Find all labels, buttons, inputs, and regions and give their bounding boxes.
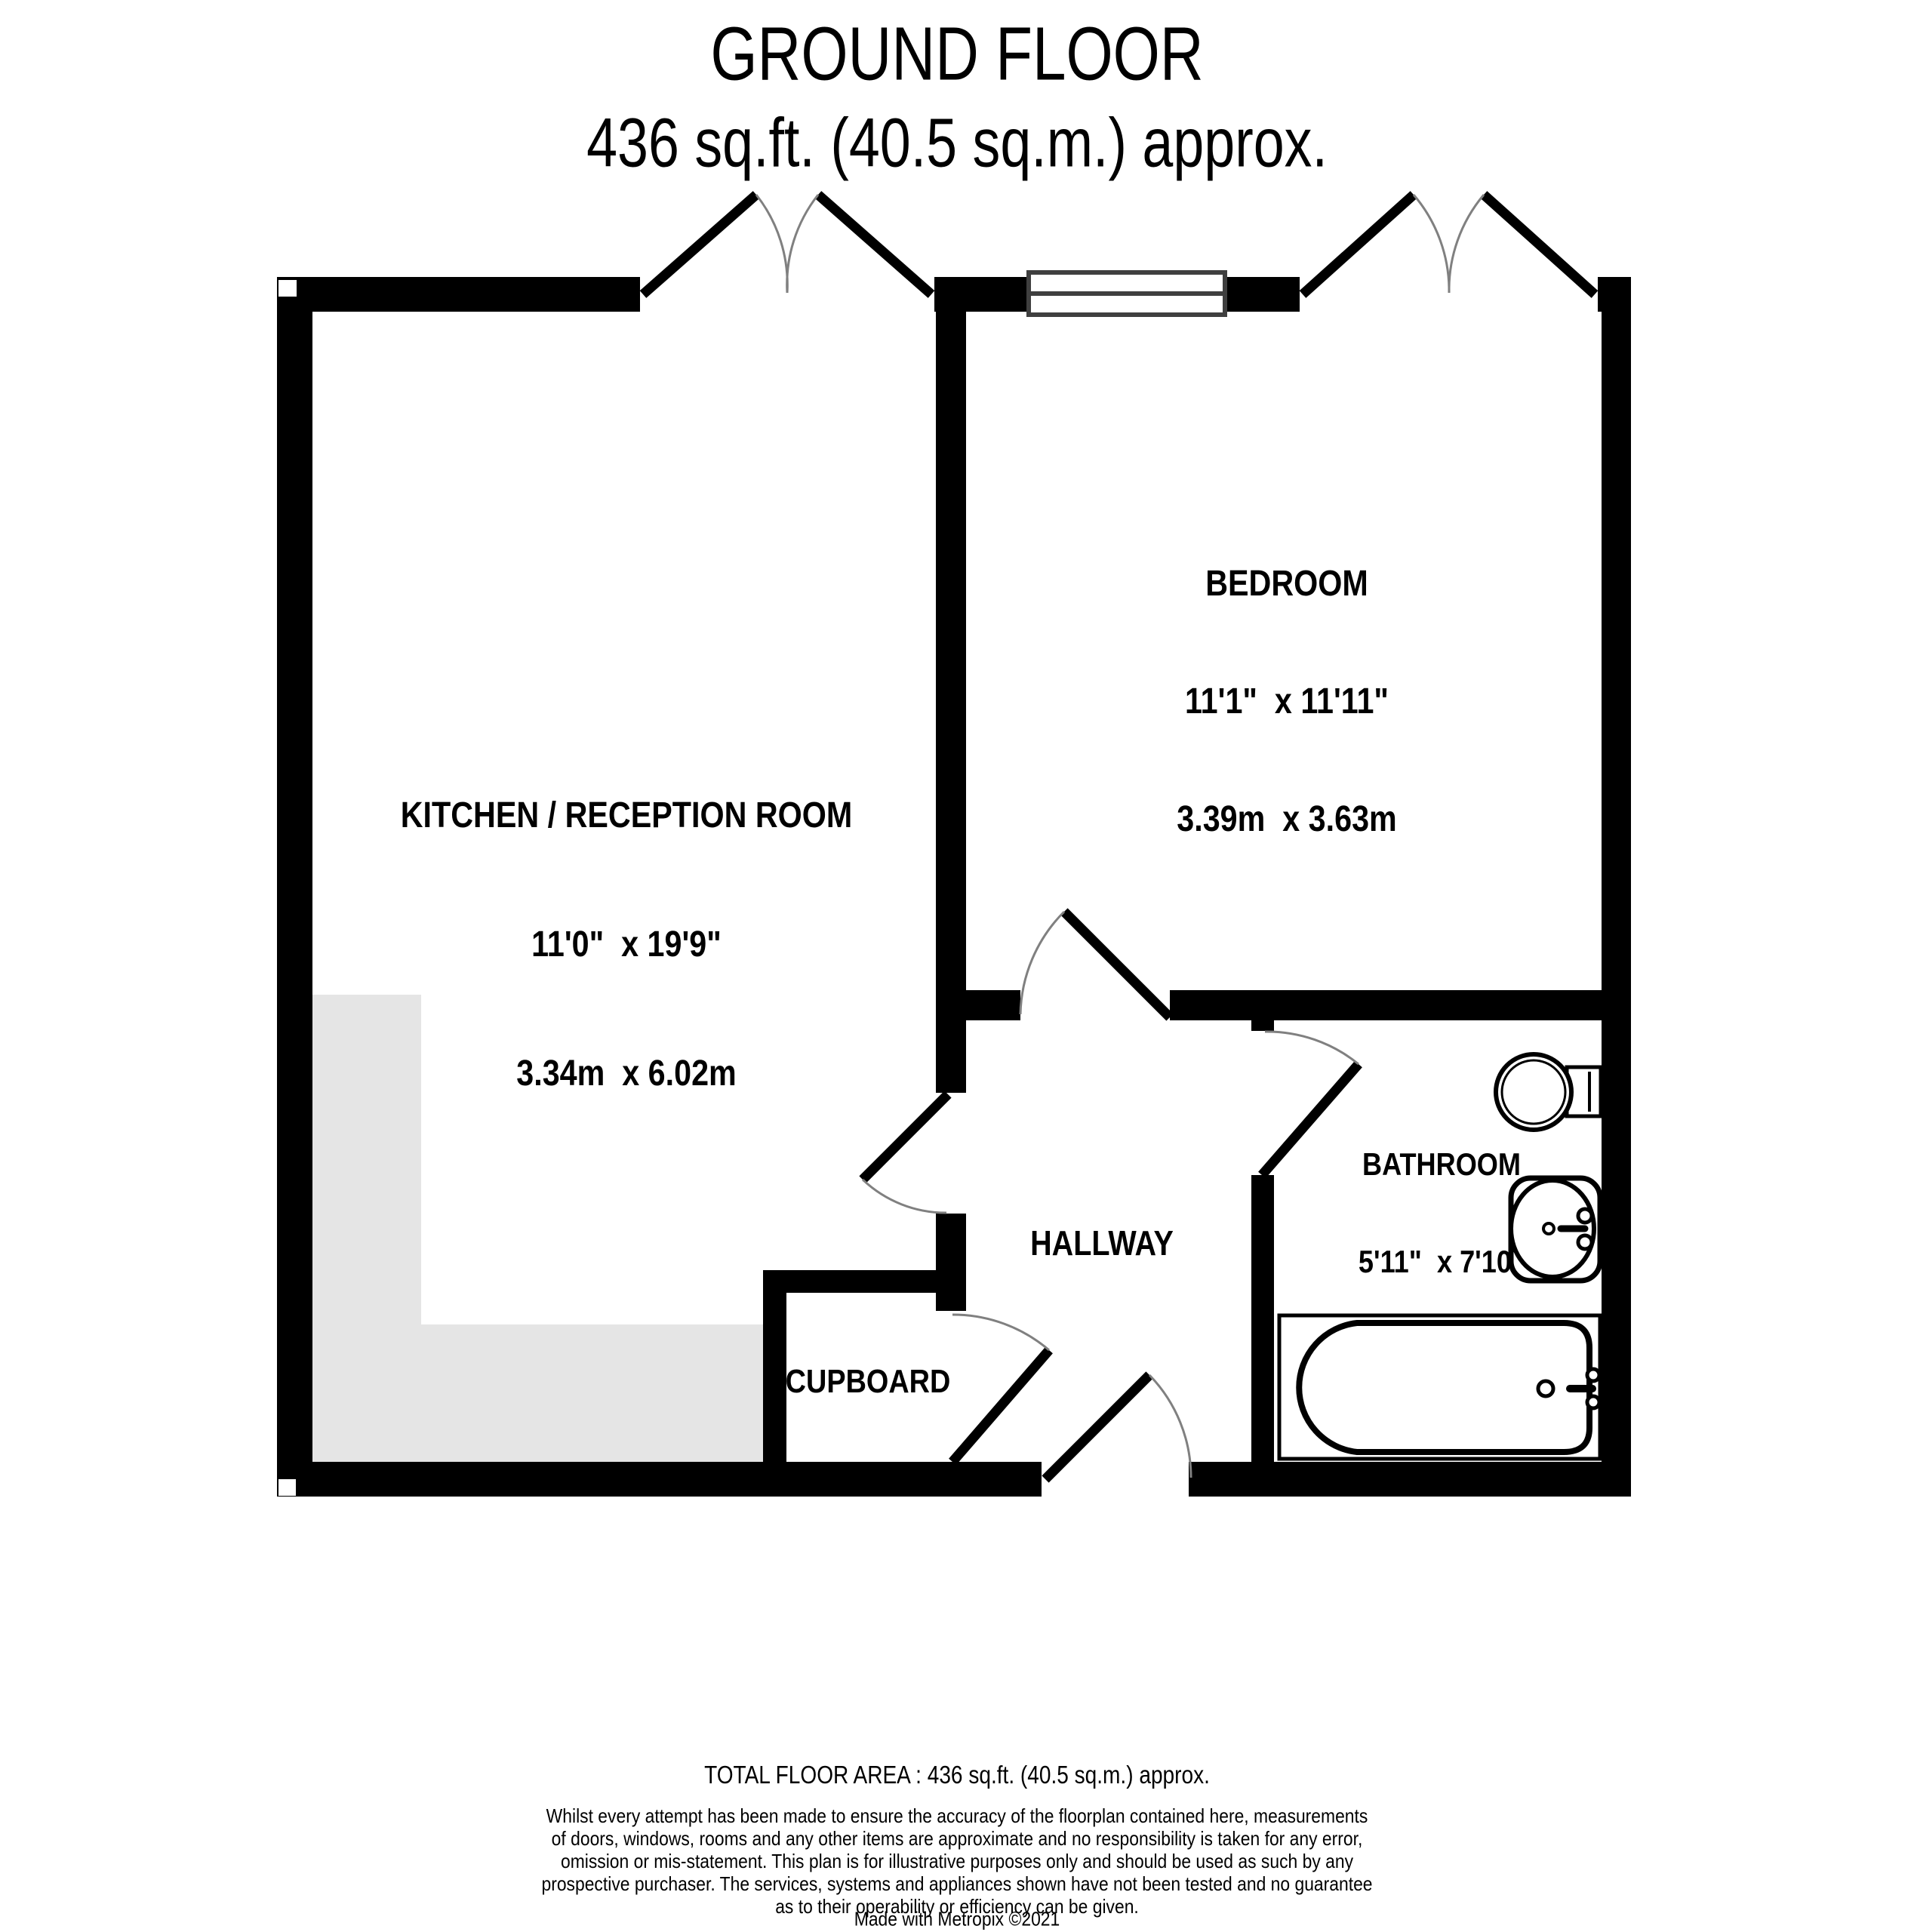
bathroom-name: BATHROOM	[1345, 1148, 1537, 1180]
cupboard-door-icon	[952, 1315, 1049, 1462]
room-label-cupboard: CUPBOARD	[786, 1363, 951, 1401]
front-door-icon	[1045, 1375, 1191, 1479]
total-floor-area: TOTAL FLOOR AREA : 436 sq.ft. (40.5 sq.m…	[704, 1761, 1210, 1789]
disclaimer-line-4: prospective purchaser. The services, sys…	[541, 1872, 1372, 1895]
floorplan-page: { "title": { "floor": "GROUND FLOOR", "a…	[0, 0, 1914, 1932]
kitchen-french-doors-icon	[643, 195, 931, 294]
page-area-subtitle: 436 sq.ft. (40.5 sq.m.) approx.	[586, 104, 1328, 183]
metropix-credit: Made with Metropix ©2021	[854, 1908, 1060, 1931]
disclaimer-text: Whilst every attempt has been made to en…	[541, 1804, 1372, 1918]
bedroom-dims-metric: 3.39m x 3.63m	[1177, 800, 1396, 839]
wall-corner-notches	[278, 280, 297, 1496]
window-icon	[1029, 272, 1225, 315]
bathroom-dims-metric: 1.81m x 2.39m	[1345, 1343, 1537, 1375]
disclaimer-line-2: of doors, windows, rooms and any other i…	[541, 1827, 1372, 1850]
room-label-bedroom: BEDROOM 11'1" x 11'11" 3.39m x 3.63m	[1177, 486, 1396, 878]
kitchen-dims-imperial: 11'0" x 19'9"	[401, 923, 853, 966]
kitchen-door-icon	[863, 1094, 948, 1213]
room-label-bathroom: BATHROOM 5'11" x 7'10" 1.81m x 2.39m	[1345, 1083, 1537, 1407]
room-label-kitchen: KITCHEN / RECEPTION ROOM 11'0" x 19'9" 3…	[401, 708, 853, 1138]
page-title: GROUND FLOOR	[710, 11, 1203, 98]
room-label-hallway: HALLWAY	[1030, 1223, 1174, 1263]
bedroom-door-icon	[1020, 912, 1170, 1017]
bathroom-door-icon	[1262, 1032, 1359, 1175]
bathroom-fixtures	[0, 0, 1914, 1932]
kitchen-dims-metric: 3.34m x 6.02m	[401, 1052, 853, 1095]
bedroom-dims-imperial: 11'1" x 11'11"	[1177, 682, 1396, 721]
disclaimer-line-1: Whilst every attempt has been made to en…	[541, 1804, 1372, 1827]
bedroom-name: BEDROOM	[1177, 565, 1396, 604]
floorplan-drawing	[0, 0, 1914, 1932]
kitchen-name: KITCHEN / RECEPTION ROOM	[401, 794, 853, 837]
bathroom-dims-imperial: 5'11" x 7'10"	[1345, 1245, 1537, 1278]
disclaimer-line-3: omission or mis-statement. This plan is …	[541, 1850, 1372, 1872]
bedroom-french-doors-icon	[1303, 195, 1595, 294]
